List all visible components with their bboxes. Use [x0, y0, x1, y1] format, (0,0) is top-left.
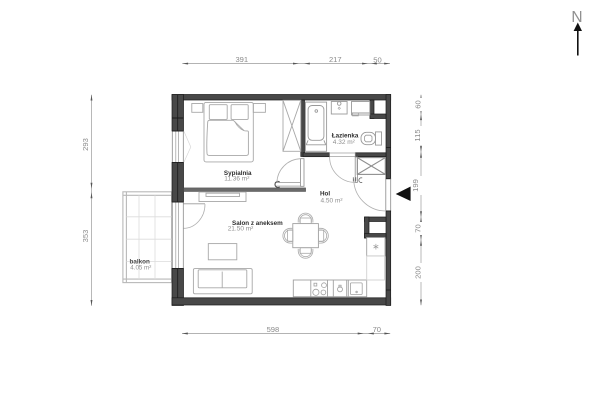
svg-text:11.36 m²: 11.36 m²: [224, 176, 250, 183]
svg-text:4.32 m²: 4.32 m²: [333, 139, 356, 146]
svg-text:217: 217: [329, 55, 342, 64]
svg-text:115: 115: [413, 129, 422, 141]
svg-text:N: N: [571, 9, 582, 26]
svg-text:598: 598: [267, 325, 280, 334]
svg-text:70: 70: [373, 325, 381, 334]
svg-text:391: 391: [235, 55, 248, 64]
svg-text:50: 50: [373, 55, 381, 64]
svg-text:70: 70: [414, 224, 423, 232]
svg-text:293: 293: [81, 138, 90, 151]
svg-text:199: 199: [411, 179, 420, 192]
svg-text:4.05 m²: 4.05 m²: [130, 265, 151, 272]
svg-text:200: 200: [414, 266, 423, 279]
svg-text:21.50 m²: 21.50 m²: [228, 225, 254, 232]
svg-text:353: 353: [81, 230, 90, 243]
svg-text:4.50 m²: 4.50 m²: [321, 197, 344, 204]
svg-text:60: 60: [414, 100, 423, 108]
